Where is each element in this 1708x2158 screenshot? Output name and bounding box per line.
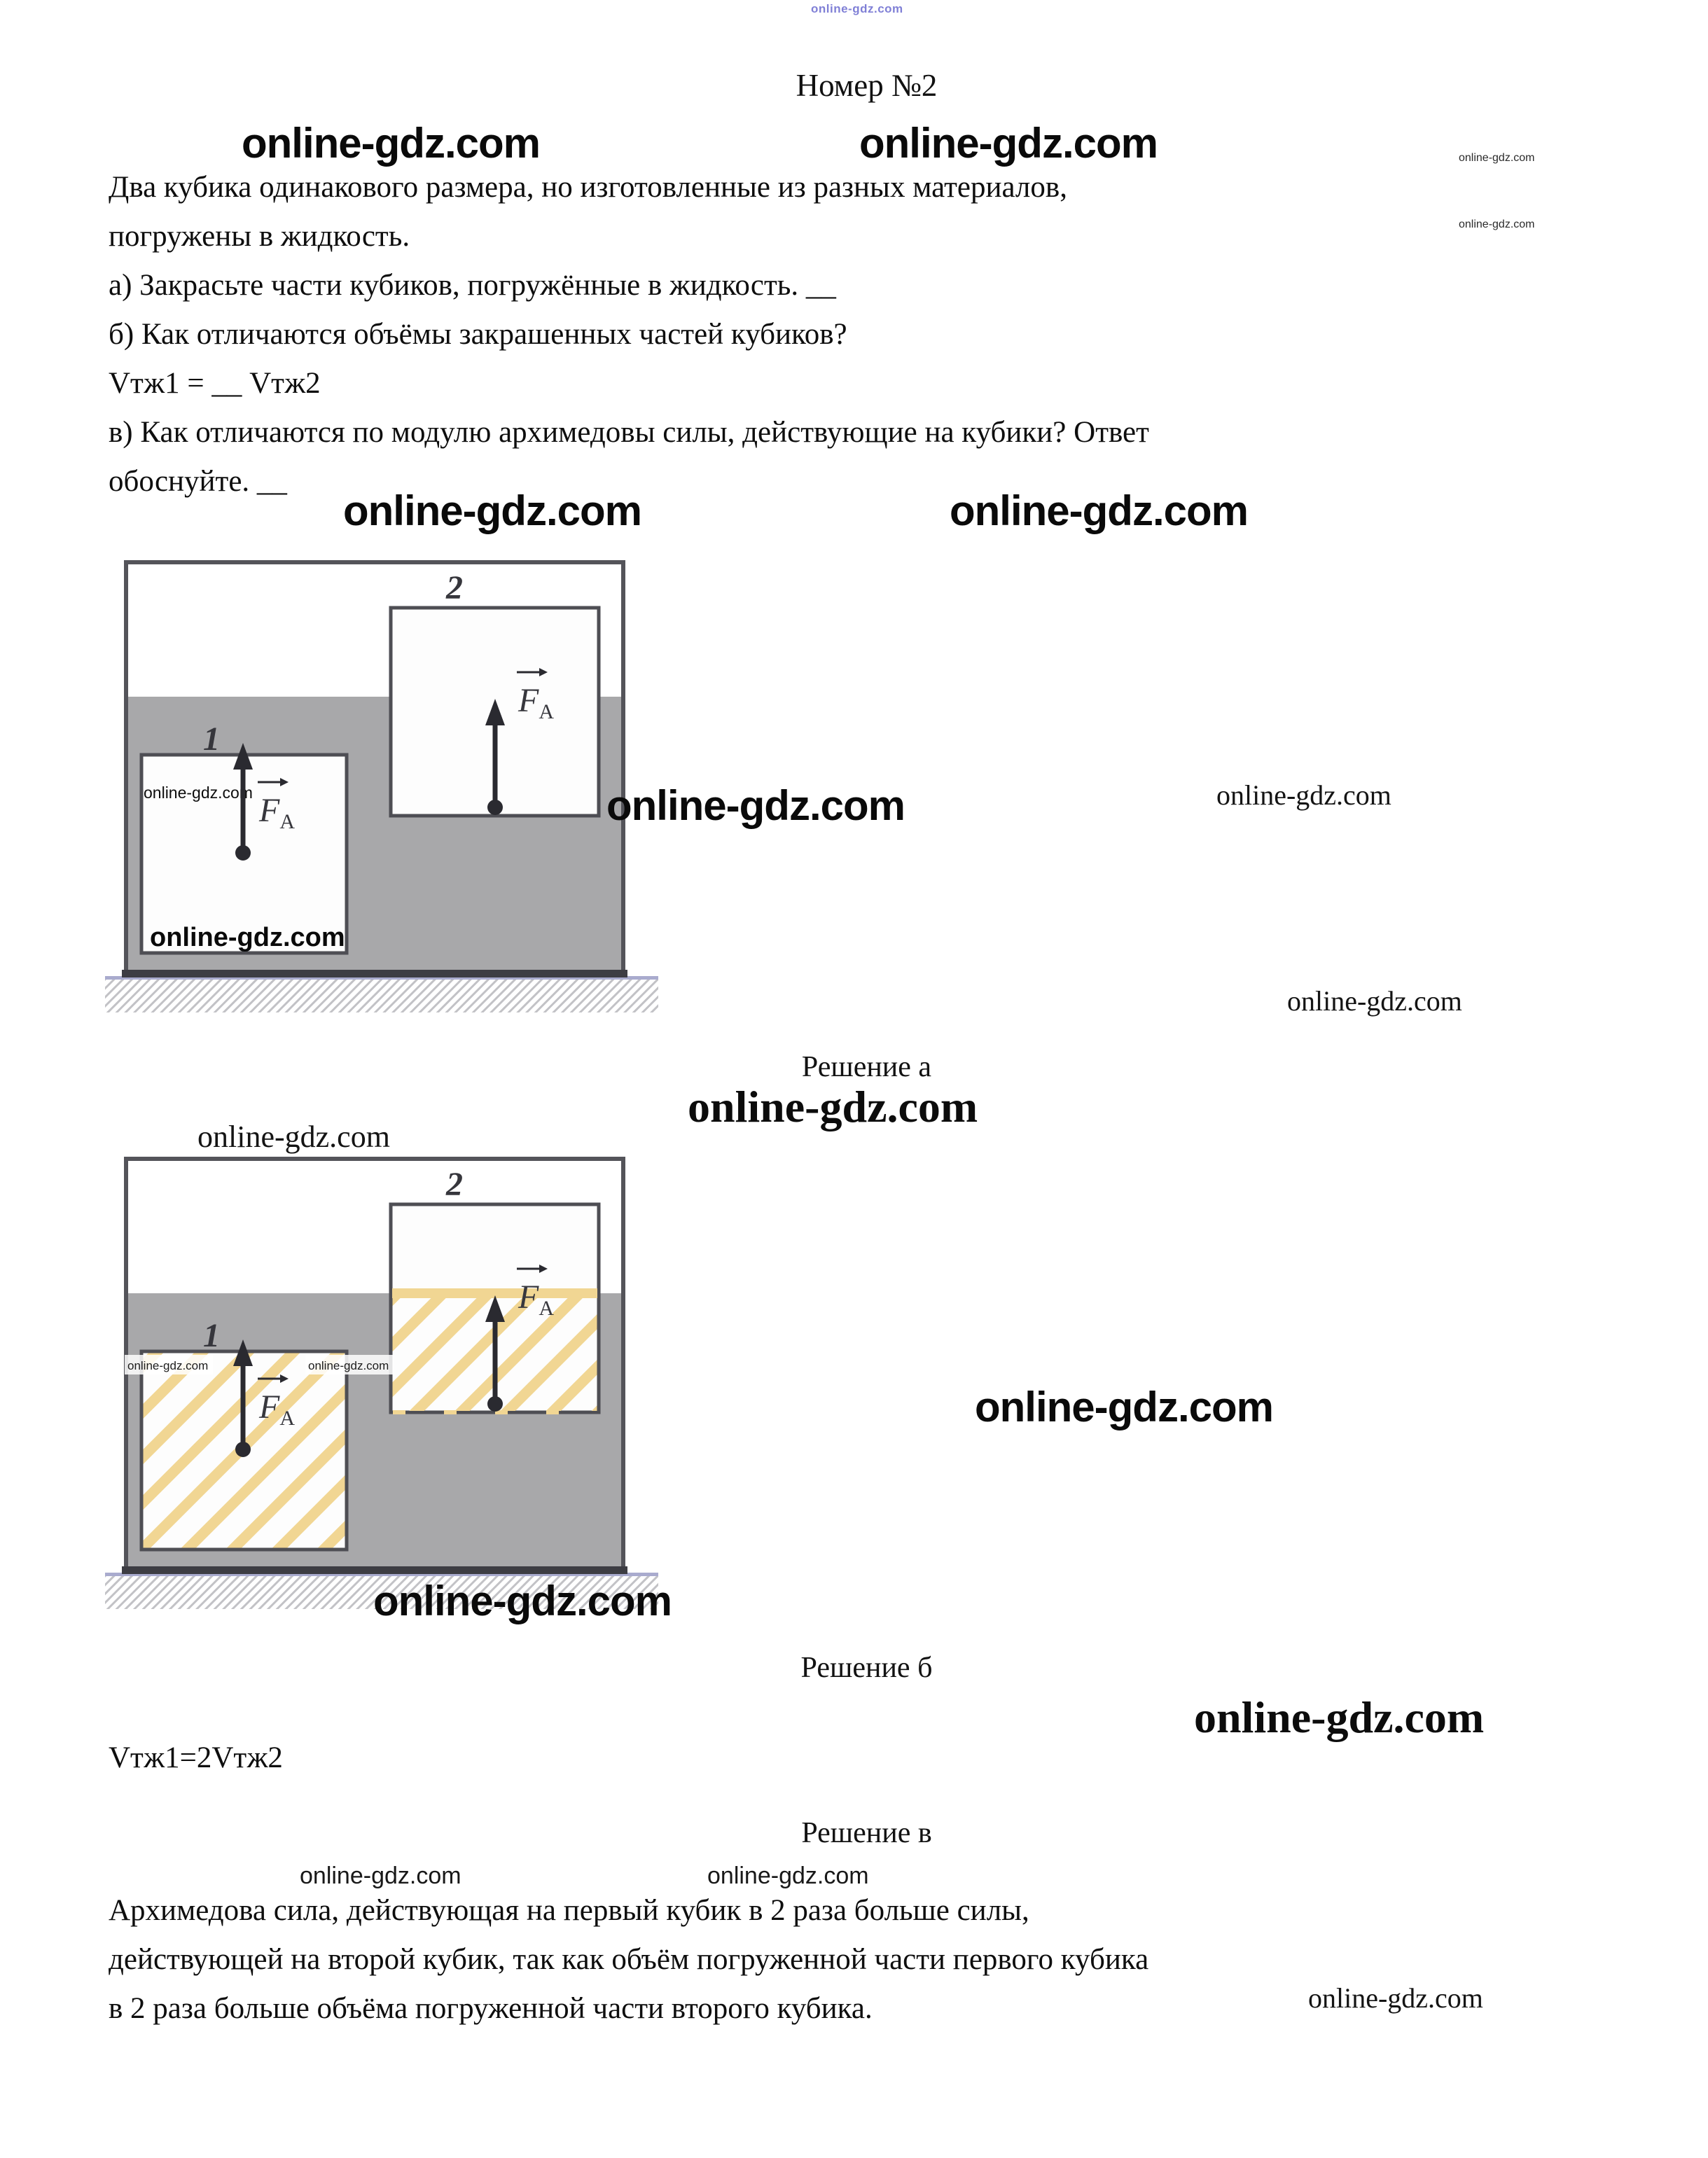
tank-bottom xyxy=(122,970,627,977)
watermark-tiny: online-gdz.com xyxy=(1459,152,1535,165)
problem-line: а) Закрасьте части кубиков, погружённые … xyxy=(109,268,836,302)
solution-v-caption: Решение в xyxy=(13,1816,1708,1850)
page-title: Номер №2 xyxy=(13,67,1708,104)
solution-v-line: Архимедова сила, действующая на первый к… xyxy=(109,1893,1029,1928)
tank-bottom xyxy=(122,1566,627,1574)
problem-line: Два кубика одинакового размера, но изгот… xyxy=(109,170,1067,204)
problem-line: в) Как отличаются по модулю архимедовы с… xyxy=(109,415,1149,450)
watermark-bold: online-gdz.com xyxy=(373,1577,672,1625)
document-page: online-gdz.com Номер №2 online-gdz.com o… xyxy=(0,0,1708,2158)
cube-1-number: 1 xyxy=(203,1317,220,1354)
problem-formula-blank: Vтж1 = __ Vтж2 xyxy=(109,366,321,401)
watermark-serif: online-gdz.com xyxy=(1287,984,1462,1017)
watermark-serif-big: online-gdz.com xyxy=(688,1081,978,1133)
watermark-bold: online-gdz.com xyxy=(242,119,540,167)
solution-a-caption: Решение а xyxy=(13,1050,1708,1084)
diagram-cubes-shaded-solution: 2 1 online-gdz.com online-gdz.com FA FA xyxy=(105,1153,658,1612)
solution-v-line: в 2 раза больше объёма погруженной части… xyxy=(109,1991,873,2026)
solution-b-caption: Решение б xyxy=(13,1651,1708,1685)
ground-hatch xyxy=(105,980,658,1012)
watermark-bold: online-gdz.com xyxy=(343,487,641,535)
cube-2-number: 2 xyxy=(445,1166,463,1203)
watermark-serif: online-gdz.com xyxy=(1308,1982,1483,2014)
cube-1-number: 1 xyxy=(203,721,220,758)
cube-2-number: 2 xyxy=(445,569,463,606)
watermark-serif-big: online-gdz.com xyxy=(1194,1692,1484,1743)
problem-line: обоснуйте. __ xyxy=(109,464,287,499)
diagram-cubes-in-liquid: 2 1 online-gdz.com online-gdz.com FA FA xyxy=(105,557,658,1015)
watermark-bold: online-gdz.com xyxy=(606,781,905,830)
watermark-in-cube-big: online-gdz.com xyxy=(150,923,345,952)
problem-line: погружены в жидкость. xyxy=(109,219,410,253)
watermark-tiny: online-gdz.com xyxy=(308,1359,389,1372)
watermark-tiny: online-gdz.com xyxy=(1459,218,1535,231)
watermark-in-cube: online-gdz.com xyxy=(144,784,253,802)
solution-v-line: действующей на второй кубик, так как объ… xyxy=(109,1942,1148,1977)
watermark-serif: online-gdz.com xyxy=(1216,779,1391,812)
watermark-top-blue: online-gdz.com xyxy=(811,2,903,16)
watermark-small: online-gdz.com xyxy=(707,1863,869,1890)
watermark-bold: online-gdz.com xyxy=(975,1383,1273,1431)
watermark-tiny: online-gdz.com xyxy=(127,1359,208,1372)
watermark-bold: online-gdz.com xyxy=(950,487,1248,535)
watermark-small: online-gdz.com xyxy=(300,1863,461,1890)
watermark-serif: online-gdz.com xyxy=(197,1119,390,1155)
solution-b-answer: Vтж1=2Vтж2 xyxy=(109,1741,283,1775)
problem-line: б) Как отличаются объёмы закрашенных час… xyxy=(109,317,847,351)
watermark-bold: online-gdz.com xyxy=(859,119,1158,167)
